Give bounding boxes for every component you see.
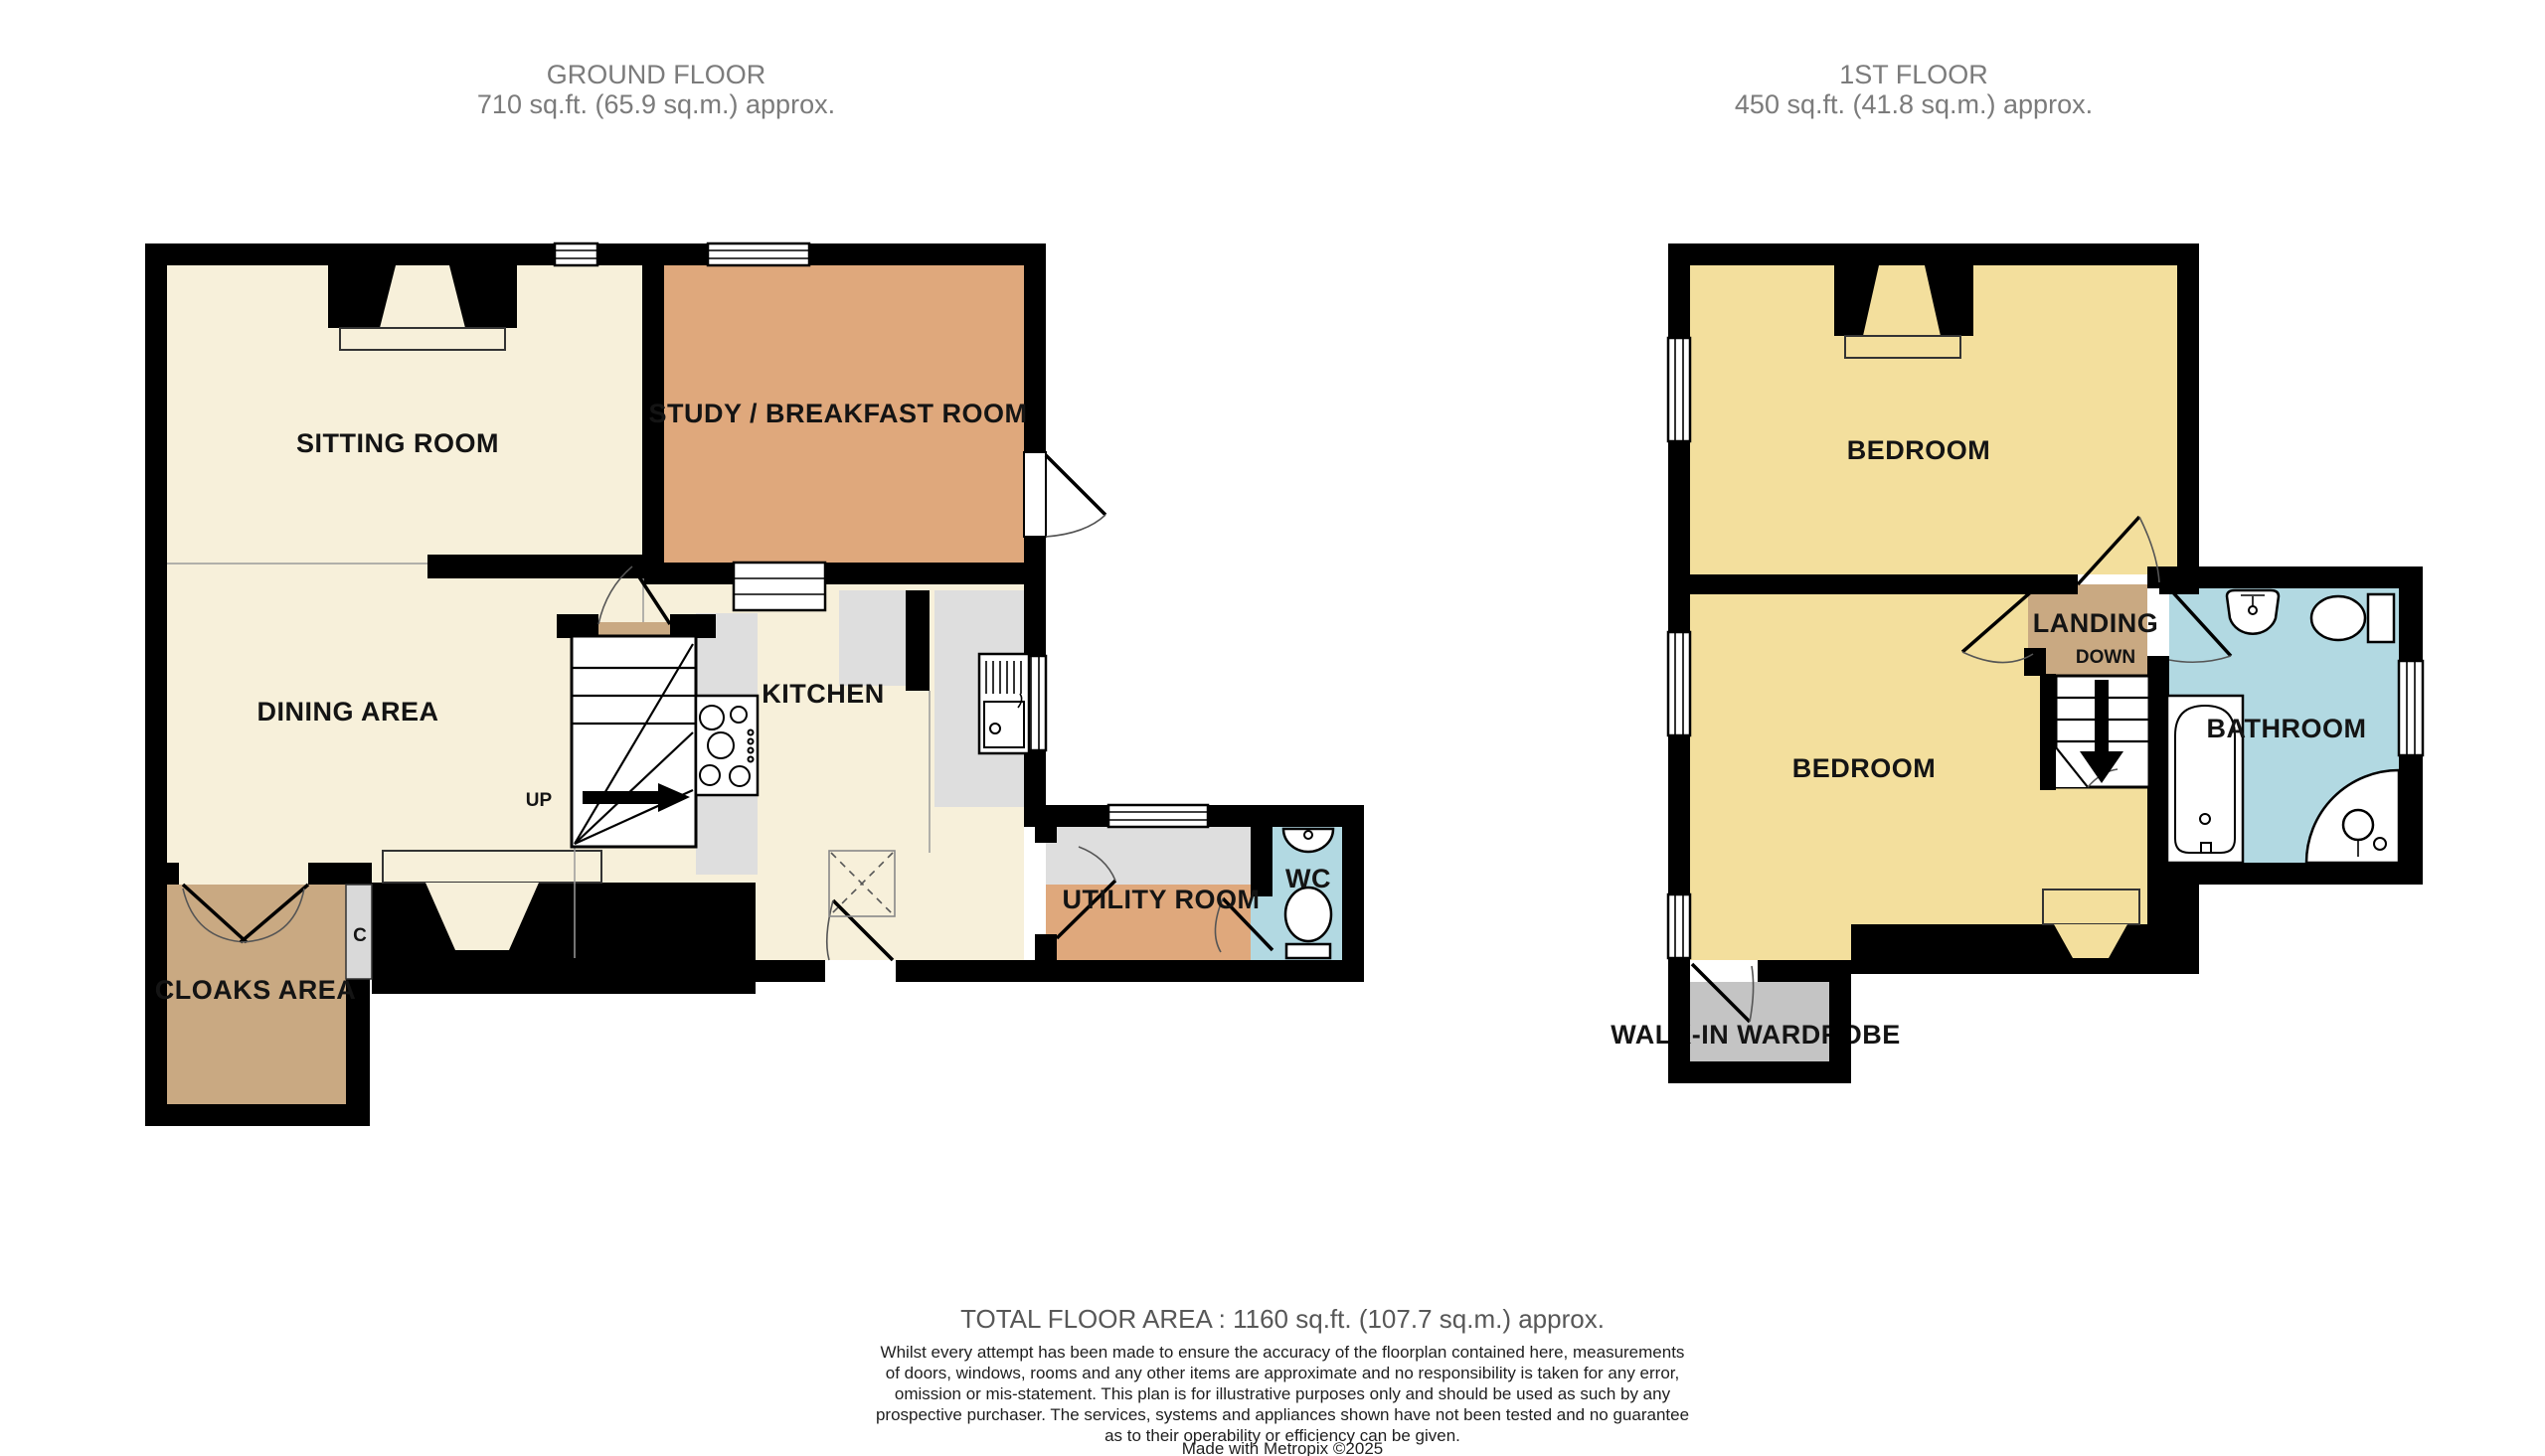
- wc-toilet-icon: [1285, 888, 1331, 958]
- disclaimer-line: of doors, windows, rooms and any other i…: [886, 1364, 1679, 1382]
- bathroom-basin-icon: [2227, 590, 2279, 634]
- landing-label: LANDING: [2033, 608, 2159, 638]
- gf-stairs: [572, 636, 696, 847]
- disclaimer-line: Whilst every attempt has been made to en…: [881, 1343, 1685, 1362]
- window: [1668, 338, 1690, 441]
- window: [2399, 661, 2423, 755]
- credit-line: Made with Metropix ©2025: [1182, 1439, 1383, 1456]
- up-arrow: [583, 791, 658, 804]
- window: [1668, 894, 1690, 958]
- study-breakfast-label: STUDY / BREAKFAST ROOM: [648, 399, 1027, 428]
- utility-worktop: [1046, 827, 1251, 885]
- window: [1108, 805, 1208, 827]
- disclaimer-line: prospective purchaser. The services, sys…: [876, 1405, 1689, 1424]
- footer: TOTAL FLOOR AREA : 1160 sq.ft. (107.7 sq…: [876, 1304, 1689, 1456]
- ground-floor-area: 710 sq.ft. (65.9 sq.m.) approx.: [477, 89, 835, 119]
- disclaimer-line: omission or mis-statement. This plan is …: [895, 1384, 1671, 1403]
- bathroom-label: BATHROOM: [2207, 714, 2367, 743]
- floorplan-drawing: GROUND FLOOR 710 sq.ft. (65.9 sq.m.) app…: [0, 0, 2545, 1456]
- stairs-up-label: UP: [526, 790, 553, 811]
- bedroom-front-label: BEDROOM: [1847, 435, 1991, 465]
- stove-icon: [696, 696, 758, 795]
- cloaks-area-label: CLOAKS AREA: [155, 975, 357, 1005]
- utility-room-label: UTILITY ROOM: [1063, 885, 1261, 914]
- bathroom-toilet-icon: [2311, 594, 2394, 642]
- ground-floor-plan: SITTING ROOM STUDY / BREAKFAST ROOM DINI…: [145, 243, 1364, 1126]
- first-floor-area: 450 sq.ft. (41.8 sq.m.) approx.: [1735, 89, 2093, 119]
- ground-floor-title: GROUND FLOOR: [547, 60, 766, 89]
- first-floor-title: 1ST FLOOR: [1839, 60, 1988, 89]
- bedroom-back-label: BEDROOM: [1792, 753, 1937, 783]
- study-external-door: [1024, 452, 1105, 537]
- stairs-down-label: DOWN: [2076, 647, 2135, 668]
- kitchen-label: KITCHEN: [762, 679, 885, 709]
- window: [734, 563, 825, 610]
- down-arrow: [2095, 680, 2109, 753]
- first-floor-plan: WALK-IN WARDROBE: [1611, 243, 2423, 1083]
- ff-stairs: [2056, 676, 2149, 787]
- wc-label: WC: [1285, 864, 1331, 893]
- window: [708, 243, 809, 265]
- total-floor-area: TOTAL FLOOR AREA : 1160 sq.ft. (107.7 sq…: [960, 1304, 1605, 1334]
- dining-area-label: DINING AREA: [256, 697, 438, 727]
- cupboard-label: C: [353, 925, 367, 946]
- sitting-room-label: SITTING ROOM: [296, 428, 499, 458]
- gf-dining-chimney: [372, 883, 756, 994]
- window: [1668, 632, 1690, 735]
- ff-chimney-mass: [1851, 924, 2199, 974]
- kitchen-sink-icon: [979, 654, 1029, 753]
- window: [555, 243, 597, 265]
- walk-in-wardrobe-label: WALK-IN WARDROBE: [1611, 1020, 1900, 1050]
- floorplan-page: GROUND FLOOR 710 sq.ft. (65.9 sq.m.) app…: [0, 0, 2545, 1456]
